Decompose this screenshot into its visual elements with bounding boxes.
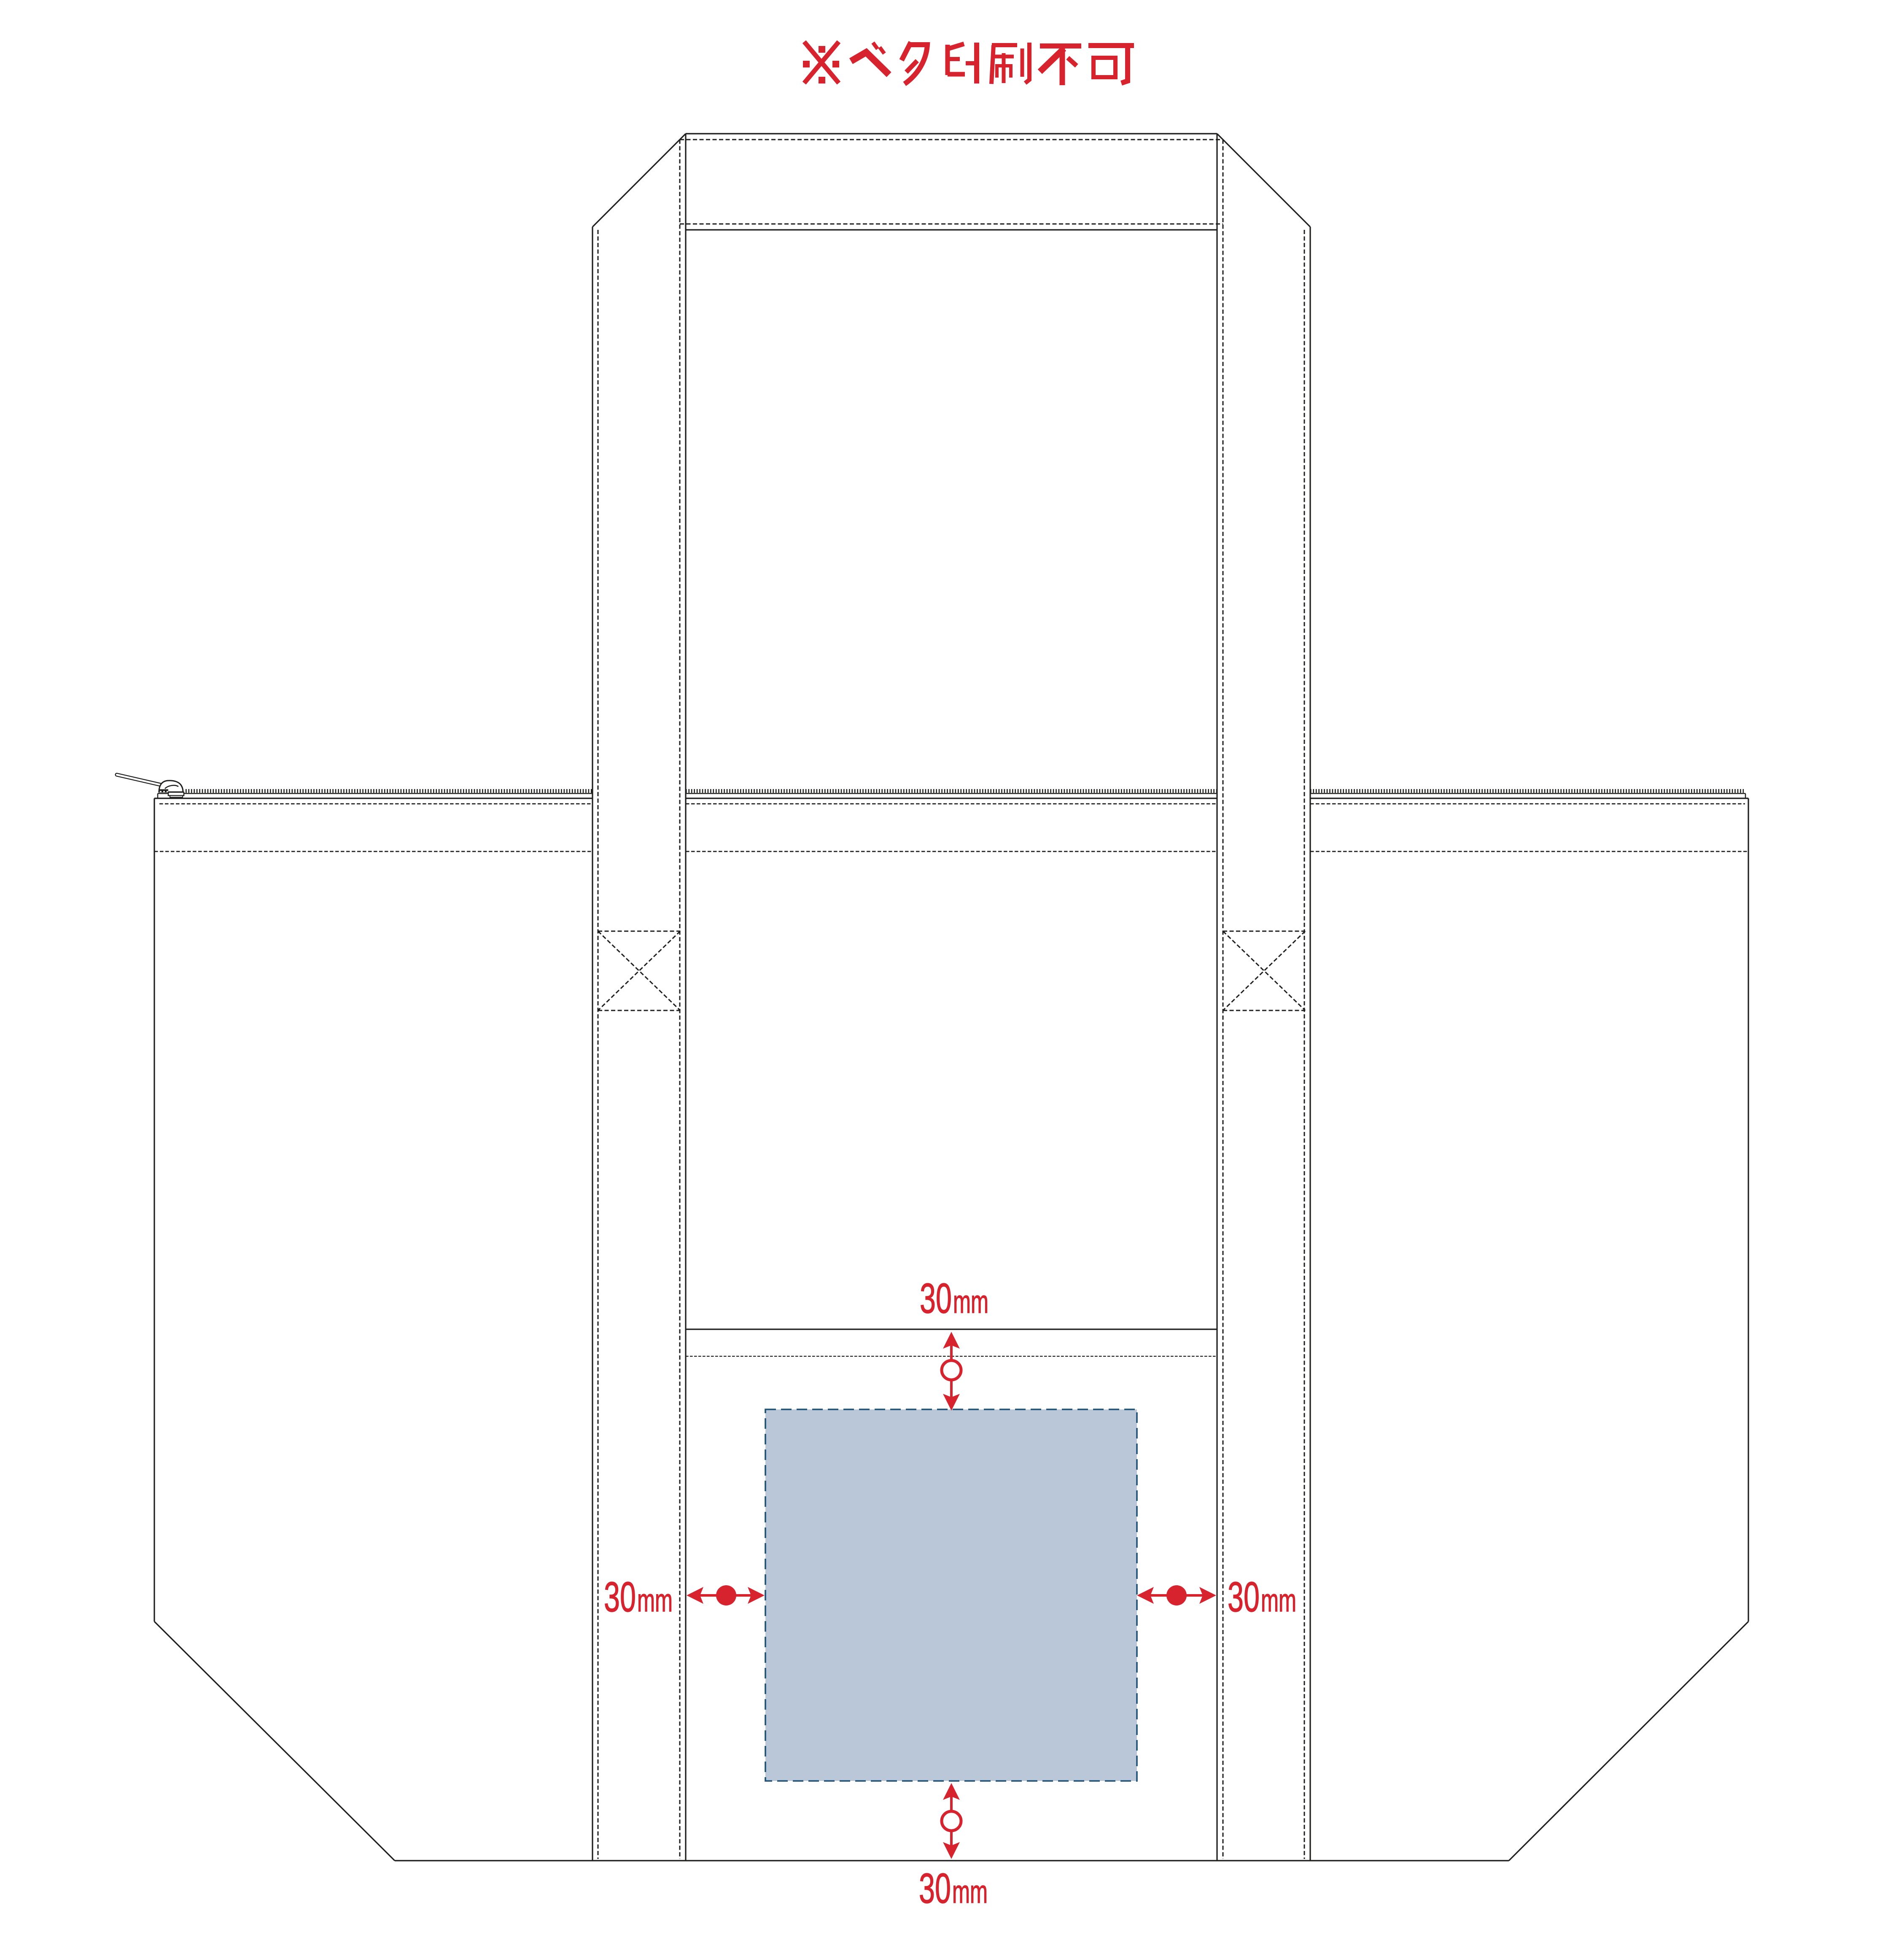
svg-text:30: 30: [1228, 1573, 1260, 1621]
svg-text:mm: mm: [953, 1284, 988, 1320]
svg-text:30: 30: [604, 1573, 636, 1621]
svg-text:mm: mm: [952, 1874, 988, 1910]
svg-text:30: 30: [920, 1275, 952, 1322]
svg-text:mm: mm: [1261, 1583, 1296, 1619]
svg-text:30: 30: [919, 1865, 951, 1912]
svg-text:mm: mm: [637, 1583, 673, 1619]
